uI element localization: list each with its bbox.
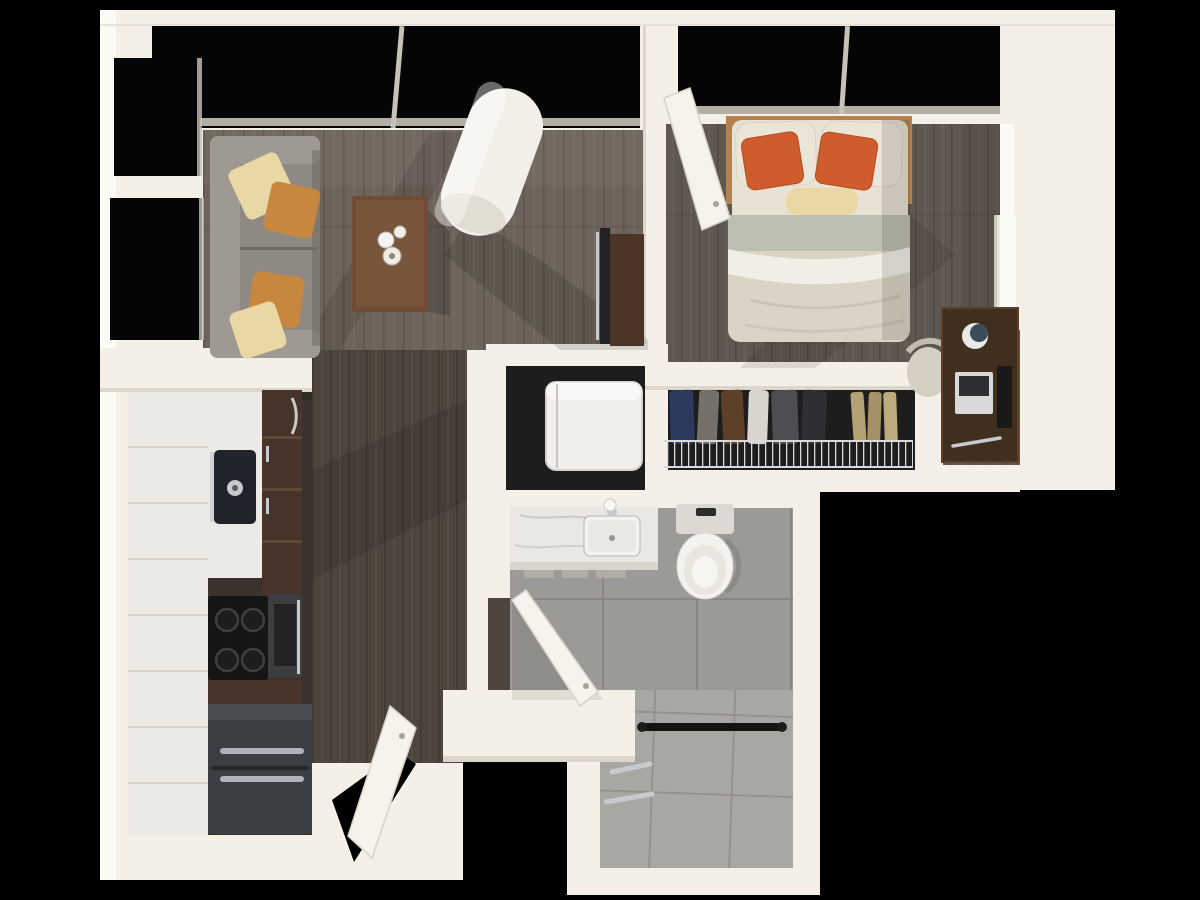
burner-4	[242, 649, 264, 671]
burner-2	[242, 609, 264, 631]
tv-console	[596, 228, 644, 346]
bedroom-window-track	[678, 106, 1000, 114]
vanity-drawer-2	[562, 570, 588, 578]
bed	[726, 116, 912, 342]
sink-drain	[609, 535, 615, 541]
clothes-item	[721, 389, 746, 444]
wire-shelf-rail-back	[664, 466, 913, 468]
hall-south-wall-edge	[443, 756, 635, 762]
cabinet-seam-1	[262, 436, 302, 439]
bed-side-shadow	[882, 120, 910, 340]
burner-1	[216, 609, 238, 631]
clothes-item	[669, 390, 695, 445]
tv-edge	[596, 232, 599, 340]
burner-3	[216, 649, 238, 671]
oven-window	[274, 604, 296, 666]
cabinet-handle-2	[266, 498, 269, 514]
bathroom-east-wall	[793, 485, 820, 895]
bathroom-door-knob	[583, 683, 589, 689]
exterior-notch	[463, 762, 567, 900]
refrigerator-divider	[212, 766, 308, 770]
hall-south-wall	[443, 690, 635, 762]
kitchen-faucet-center	[232, 485, 238, 491]
desk-lamp-crescent	[970, 324, 988, 342]
sofa	[210, 136, 322, 360]
kitchen-counter-strip	[128, 392, 208, 835]
clothes-item	[747, 390, 769, 445]
toilet-lid-center	[692, 556, 718, 588]
bedroom-window	[678, 26, 1000, 114]
clothes-item	[771, 390, 799, 445]
clothes-item	[883, 392, 898, 442]
sink-faucet-cap	[604, 499, 616, 511]
clothes-item	[867, 392, 882, 442]
table-tray-center	[389, 253, 395, 259]
left-window-lower	[110, 198, 202, 340]
kitchen-lower-cabinet	[208, 680, 302, 704]
laundry-west-wall	[486, 344, 506, 492]
sofa-cushion-seam	[240, 247, 318, 250]
wire-shelf-rail-front	[664, 440, 913, 442]
bed-pillow-orange-right	[814, 131, 878, 191]
refrigerator-handle-bottom	[220, 776, 304, 782]
toilet-flush-button	[696, 508, 716, 516]
bathroom-north-wall	[486, 490, 820, 508]
left-window-upper-sill	[197, 58, 202, 176]
cabinet-seam-2	[262, 488, 302, 491]
outer-wall-highlight	[100, 10, 116, 880]
sofa-front-edge	[312, 150, 320, 346]
washer-top-sheen	[546, 382, 642, 400]
laundry	[546, 382, 642, 470]
table-cup-2	[394, 226, 406, 238]
bathroom-west-wall-upper	[488, 490, 510, 598]
towel-bar	[638, 723, 786, 731]
floor-plan-render	[0, 0, 1200, 900]
laptop-screen	[959, 376, 989, 396]
bedroom-door-knob	[713, 201, 719, 207]
closet-north-wall-edge	[645, 386, 943, 390]
towel-bar-knob-left	[637, 722, 647, 732]
media-console	[610, 234, 644, 346]
clothes-item	[697, 390, 720, 445]
entry-door-knob	[399, 733, 405, 739]
living-bedroom-partition	[643, 26, 666, 362]
table-cup-1	[378, 232, 394, 248]
sink-edge-trim	[210, 452, 214, 522]
refrigerator-handle-top	[220, 748, 304, 754]
left-window-lower-sill	[199, 198, 204, 340]
clothes-item	[801, 390, 827, 445]
left-window-upper	[114, 58, 200, 176]
washer-door-seam	[556, 384, 558, 468]
kitchen-appliances	[208, 390, 312, 834]
vanity-drawer-1	[524, 570, 554, 578]
cabinet-seam-3	[262, 540, 302, 543]
refrigerator-sheen	[208, 704, 312, 720]
oven-handle	[297, 600, 300, 674]
tv-screen	[600, 228, 610, 344]
top-wall-edge	[100, 24, 1115, 26]
floor-plan-canvas	[0, 0, 1200, 900]
sofa-pillow-tan-top	[262, 180, 321, 239]
bed-pillow-orange-left	[740, 131, 804, 191]
vanity-drawer-3	[596, 570, 626, 578]
vanity-front-edge	[510, 562, 658, 570]
desk-speaker	[997, 366, 1012, 428]
towel-bar-knob-right	[777, 722, 787, 732]
cabinet-handle-1	[266, 446, 269, 462]
nook-south-wall	[943, 465, 1020, 492]
closet-contents	[664, 389, 913, 468]
wire-shelf	[664, 440, 913, 468]
bed-pillow-lumbar	[786, 188, 858, 215]
